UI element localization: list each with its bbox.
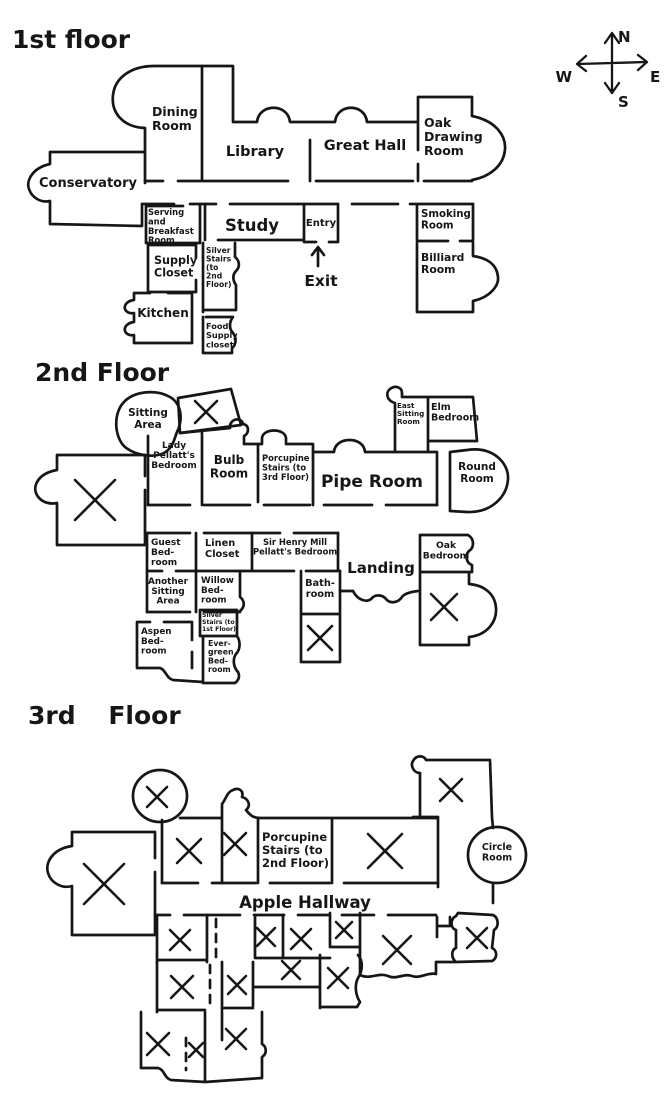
label-bathroom: Bath-room — [305, 578, 335, 600]
label-kitchen: Kitchen — [137, 306, 189, 320]
label-library: Library — [226, 144, 285, 160]
label-bulb-room: BulbRoom — [210, 453, 248, 480]
label-willow-bedroom: WillowBed-room — [201, 576, 234, 606]
label-exit: Exit — [304, 272, 338, 290]
x-mark — [171, 976, 193, 998]
x-mark — [328, 968, 348, 988]
exit-arrow — [312, 247, 324, 266]
label-conservatory: Conservatory — [39, 176, 137, 191]
x-mark — [440, 779, 462, 801]
floor2-west-room — [35, 455, 145, 545]
floor-2: 2nd Floor SittingArea LadyPellatt'sBedro… — [35, 358, 508, 683]
x-mark — [228, 976, 246, 994]
x-mark — [282, 961, 300, 979]
floor2-title: 2nd Floor — [35, 358, 170, 387]
label-great-hall: Great Hall — [324, 138, 407, 154]
label-oak-bedroom: OakBedroom — [423, 540, 470, 561]
x-mark — [147, 787, 167, 807]
floor3-topright-room-walls — [412, 756, 493, 903]
x-mark — [431, 594, 457, 620]
label-aspen-bedroom: AspenBed-room — [141, 627, 172, 657]
compass-w-label: W — [555, 68, 572, 86]
label-study: Study — [225, 216, 279, 235]
label-evergreen-bedroom: Ever-greenBed-room — [208, 639, 234, 674]
x-mark — [368, 834, 402, 868]
label-dining-room: DiningRoom — [152, 104, 198, 133]
x-mark — [226, 1029, 246, 1049]
x-mark — [308, 626, 332, 650]
floor3-right-bottom-walls — [360, 913, 498, 977]
label-landing: Landing — [347, 559, 415, 577]
x-mark — [177, 839, 201, 863]
x-mark — [336, 922, 352, 938]
x-mark — [195, 401, 217, 423]
label-linen-closet: LinenCloset — [205, 538, 240, 560]
floor3-west-room — [47, 832, 155, 935]
floor1-title: 1st floor — [12, 25, 131, 54]
label-pipe-room: Pipe Room — [321, 472, 423, 492]
label-billiard-room: BilliardRoom — [421, 251, 464, 276]
x-mark — [84, 864, 124, 904]
x-mark — [147, 1033, 169, 1055]
label-another-sitting-area: AnotherSittingArea — [148, 577, 189, 607]
label-round-room: RoundRoom — [458, 461, 496, 485]
label-sitting-area: SittingArea — [128, 407, 168, 431]
label-apple-hallway: Apple Hallway — [239, 893, 371, 912]
label-guest-bedroom: GuestBed-room — [151, 538, 181, 568]
compass-n-label: N — [618, 28, 631, 46]
x-mark — [383, 936, 411, 964]
label-supply-closet: SupplyCloset — [154, 254, 198, 280]
compass: N E S W — [555, 28, 660, 111]
label-elm-bedroom: ElmBedroom — [431, 402, 479, 424]
x-mark — [257, 928, 275, 946]
compass-s-label: S — [618, 93, 629, 111]
page: 1st floor N E S W DiningRoom Library Gre… — [0, 0, 667, 1106]
label-food-supply-closet: FoodSupplycloset — [206, 321, 238, 349]
floor2-landing-bottom — [340, 591, 418, 602]
label-serving-breakfast: ServingandBreakfastRoom — [148, 207, 194, 245]
floor3-turret — [133, 770, 187, 822]
label-porcupine-stairs-3f: PorcupineStairs (to2nd Floor) — [262, 830, 329, 870]
floor3-title: 3rd Floor — [28, 701, 181, 730]
label-porcupine-stairs-2f: PorcupineStairs (to3rd Floor) — [262, 453, 310, 482]
compass-cross — [577, 33, 647, 93]
x-mark — [291, 929, 311, 949]
label-lady-pellatts-bedroom: LadyPellatt'sBedroom — [151, 441, 197, 471]
floor-plan-drawing: 1st floor N E S W DiningRoom Library Gre… — [0, 0, 667, 1106]
floor-1: 1st floor N E S W DiningRoom Library Gre… — [12, 25, 660, 353]
label-sir-henry-bedroom: Sir Henry MillPellatt's Bedroom — [253, 537, 337, 556]
x-mark — [224, 833, 246, 855]
x-mark — [189, 1043, 203, 1057]
x-mark — [467, 928, 487, 948]
x-mark — [75, 480, 115, 520]
label-silver-stairs-1f: SilverStairs(to2ndFloor) — [206, 246, 232, 289]
floor1-dividers — [145, 66, 472, 181]
label-entry: Entry — [306, 218, 337, 229]
label-circle-room: CircleRoom — [482, 842, 512, 864]
label-east-sitting-room: EastSittingRoom — [397, 401, 424, 426]
x-mark — [170, 930, 190, 950]
compass-e-label: E — [650, 68, 660, 86]
label-smoking-room: SmokingRoom — [421, 209, 471, 231]
floor-3: 3rd Floor PorcupineStai — [28, 701, 526, 1082]
label-silver-stairs-2f: SilverStairs (to1st Floor) — [202, 612, 236, 633]
label-oak-drawing-room: OakDrawingRoom — [424, 115, 483, 158]
floor2-x-room-top — [178, 389, 241, 433]
